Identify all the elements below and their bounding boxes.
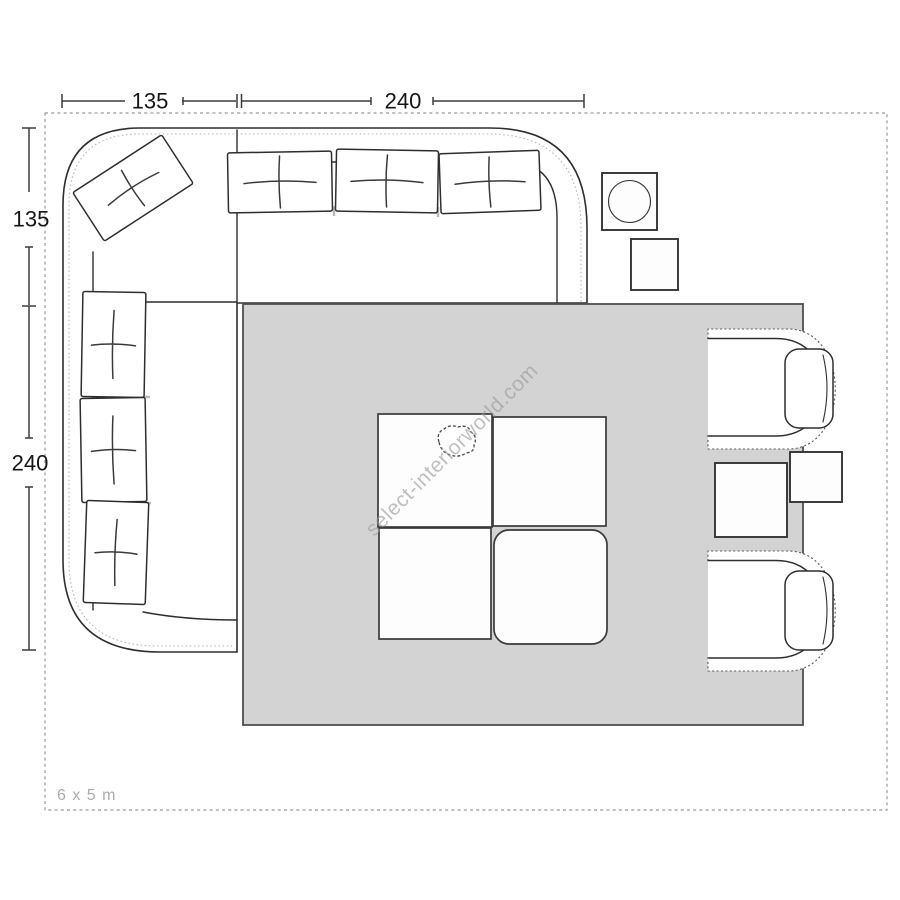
armchair-back-cushion: [785, 349, 833, 428]
dimension-left-135: 135: [13, 128, 50, 305]
dimension-label: 240: [385, 89, 422, 114]
sofa-cushion: [83, 500, 149, 604]
dimension-label: 135: [132, 89, 169, 114]
side-table-right: [790, 452, 842, 502]
armchair-top: [708, 329, 835, 449]
floor-plan-canvas: 135 240 135 240: [0, 0, 900, 900]
armchair-bottom: [708, 551, 835, 671]
lamp-side-table: [602, 173, 657, 230]
dimension-label: 135: [13, 207, 50, 232]
floor-plan-page: 135 240 135 240: [0, 0, 900, 900]
sofa-cushion: [81, 291, 146, 397]
dimension-top-135: 135: [62, 89, 236, 114]
side-table-top: [631, 239, 678, 290]
armchair-back-cushion: [785, 571, 833, 650]
sofa-cushion: [439, 150, 541, 213]
side-table-top-surface: [602, 173, 657, 230]
sofa-cushion: [335, 149, 438, 213]
table-module: [379, 528, 491, 639]
room-size-label: 6 x 5 m: [57, 787, 116, 804]
dimension-left-240: 240: [12, 306, 49, 650]
sofa-cushion: [80, 397, 147, 502]
dimension-top-240: 240: [237, 89, 584, 114]
side-table-between-chairs: [715, 463, 787, 537]
sofa-cushion: [227, 151, 332, 213]
table-module: [493, 417, 606, 526]
dimension-label: 240: [12, 451, 49, 476]
table-module-pouf: [494, 530, 607, 644]
